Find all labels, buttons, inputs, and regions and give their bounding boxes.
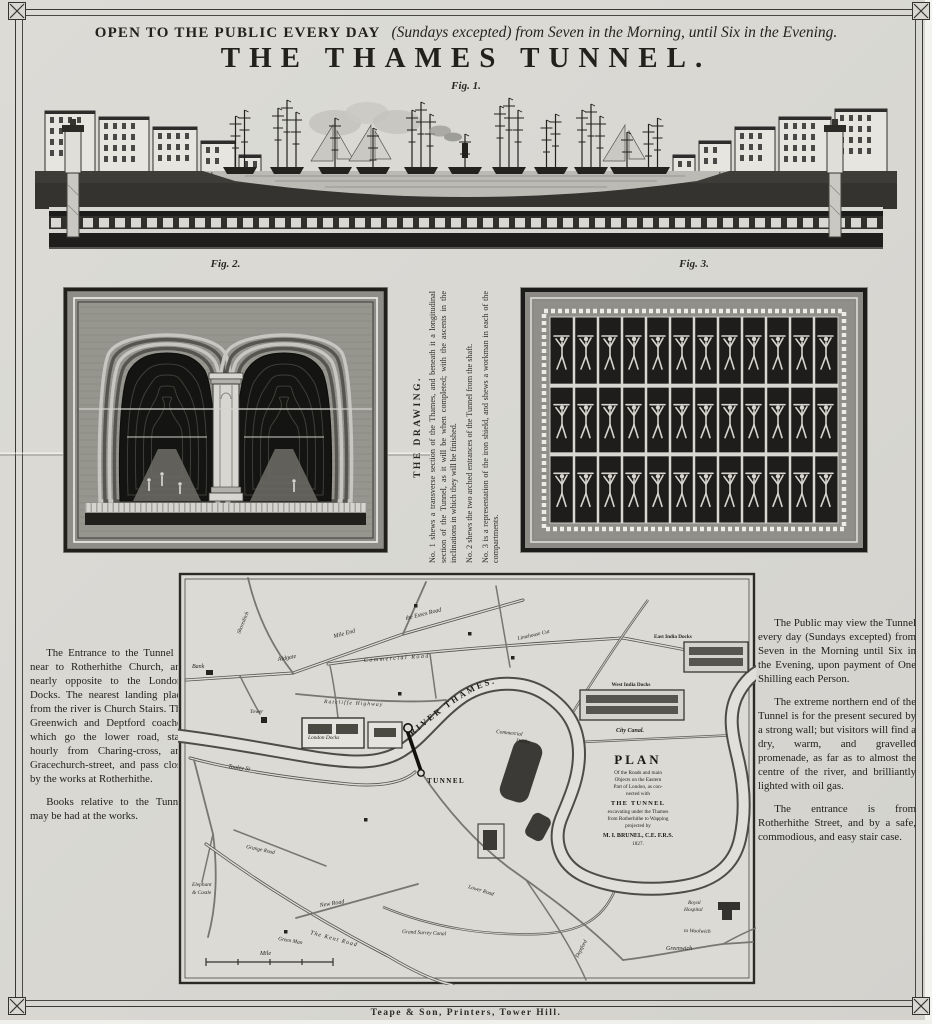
left-paragraph-2: Books relative to the Tunnel may be had …: [30, 795, 186, 823]
tower-label: Tower: [250, 709, 264, 715]
plan-line-3: Part of London, as con-: [614, 783, 663, 790]
opening-hours-italic: (Sundays excepted) from Seven in the Mor…: [391, 24, 837, 41]
tunnel-top-band: [49, 211, 883, 216]
photo-edge-right: [925, 0, 932, 1024]
corner-ornament-top-right: [912, 2, 930, 20]
printer-imprint: Teape & Son, Printers, Tower Hill.: [0, 1008, 932, 1018]
sill-band: [85, 503, 366, 512]
drawing-notes-block: THE DRAWING. No. 1 shews a transverse se…: [413, 291, 507, 563]
london-docks-label: London Docks: [307, 735, 339, 741]
tunnel-bottom-band: [49, 233, 883, 247]
west-india-docks: [580, 690, 684, 720]
base-band: [85, 513, 366, 525]
drawing-note-2: No. 2 shews the two arched entrances of …: [465, 291, 476, 563]
tunnel-label: TUNNEL: [427, 777, 465, 785]
right-text-column: The Public may view the Tunnel every day…: [758, 616, 916, 853]
left-text-column: The Entrance to the Tunnel is near to Ro…: [30, 646, 186, 832]
fig2-engraving: [63, 287, 388, 553]
plan-line-7: projected by: [625, 823, 651, 829]
drawing-note-1: No. 1 shews a transverse section of the …: [428, 291, 460, 563]
photo-edge-bottom: [0, 1020, 932, 1024]
corner-ornament-top-left: [8, 2, 26, 20]
east-india-docks: [684, 642, 748, 672]
royal-hospital-label-2: Hospital: [683, 907, 703, 913]
opening-hours-bold: OPEN TO THE PUBLIC EVERY DAY: [95, 25, 381, 41]
east-india-docks-label: East India Docks: [654, 634, 692, 640]
london-docks: [302, 718, 402, 748]
plan-title: PLAN: [614, 752, 661, 767]
right-paragraph-1: The Public may view the Tunnel every day…: [758, 616, 916, 686]
smoke-clouds: [309, 102, 421, 136]
elephant-label-1: Elephant: [191, 882, 212, 888]
mile-scale-label: Mile: [259, 951, 271, 957]
greenwich-label: Greenwich: [666, 946, 692, 952]
plan-line-2: Objects on the Eastern: [615, 777, 662, 783]
central-pillar: [209, 373, 243, 501]
plan-tunnel: THE TUNNEL: [611, 800, 665, 807]
masthead: OPEN TO THE PUBLIC EVERY DAY (Sundays ex…: [40, 24, 892, 42]
plan-line-1: Of the Roads and main: [614, 769, 662, 776]
plan-line-6: from Rotherhithe to Wapping: [607, 815, 668, 822]
broadside-sheet: OPEN TO THE PUBLIC EVERY DAY (Sundays ex…: [0, 0, 932, 1024]
left-paragraph-1: The Entrance to the Tunnel is near to Ro…: [30, 646, 186, 786]
fig3-caption: Fig. 3.: [520, 258, 868, 270]
map-engraving: RIVER THAMES.: [178, 572, 756, 985]
plan-line-5: excavating under the Thames: [608, 809, 669, 815]
fig1-engraving: [35, 95, 897, 250]
plan-year: 1827.: [632, 841, 644, 847]
elephant-label-2: & Castle: [192, 890, 212, 896]
bank-label: Bank: [192, 664, 205, 670]
plan-author: M. I. BRUNEL, C.E. F.R.S.: [603, 833, 674, 839]
page-title: THE THAMES TUNNEL.: [0, 42, 932, 75]
fig2-caption: Fig. 2.: [63, 258, 388, 270]
right-paragraph-2: The extreme northern end of the Tunnel i…: [758, 695, 916, 793]
tunnel-base-line: [49, 247, 883, 249]
drawing-note-3: No. 3 is a representation of the iron sh…: [481, 291, 502, 563]
fig1-caption: Fig. 1.: [0, 80, 932, 92]
tunnel-floor-line: [49, 229, 883, 233]
tunnel-crown-line: [49, 207, 883, 211]
drawing-notes-heading: THE DRAWING.: [413, 291, 423, 563]
fig3-engraving: [520, 287, 868, 553]
city-canal-label: City Canal.: [616, 728, 645, 734]
plan-line-4: nected with: [626, 791, 650, 797]
right-paragraph-3: The entrance is from Rotherhithe Street,…: [758, 802, 916, 844]
west-india-docks-label: West India Docks: [612, 682, 651, 688]
sailing-ships: [223, 98, 670, 174]
royal-hospital-label-1: Royal: [687, 900, 701, 906]
to-woolwich-label: to Woolwich: [684, 928, 711, 935]
